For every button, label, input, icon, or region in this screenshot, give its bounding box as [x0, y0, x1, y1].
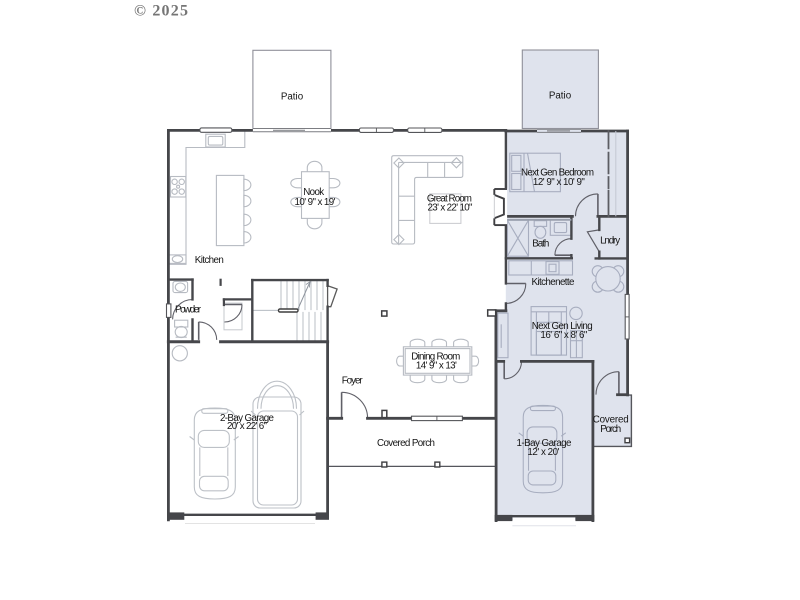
svg-text:Patio: Patio — [549, 90, 572, 101]
svg-text:16' 6" x 8' 6": 16' 6" x 8' 6" — [540, 330, 588, 341]
svg-text:Powder: Powder — [175, 305, 202, 316]
svg-text:Covered Porch: Covered Porch — [377, 438, 435, 449]
svg-text:Foyer: Foyer — [342, 375, 364, 386]
svg-text:Kitchenette: Kitchenette — [532, 277, 576, 288]
svg-text:© 2025: © 2025 — [134, 3, 189, 20]
svg-text:Lndry: Lndry — [600, 235, 620, 246]
svg-text:12' x 20': 12' x 20' — [527, 447, 559, 458]
svg-text:14' 9" x 13': 14' 9" x 13' — [416, 360, 457, 371]
svg-text:Patio: Patio — [281, 91, 304, 102]
svg-text:Porch: Porch — [600, 424, 621, 435]
svg-text:20' x 22' 6": 20' x 22' 6" — [227, 421, 268, 432]
svg-text:Kitchen: Kitchen — [195, 255, 224, 266]
svg-text:12' 9" x 10' 9": 12' 9" x 10' 9" — [533, 177, 586, 188]
svg-text:10' 9" x 19': 10' 9" x 19' — [295, 197, 336, 208]
svg-text:23' x 22' 10": 23' x 22' 10" — [428, 202, 474, 213]
svg-text:Bath: Bath — [532, 239, 549, 250]
